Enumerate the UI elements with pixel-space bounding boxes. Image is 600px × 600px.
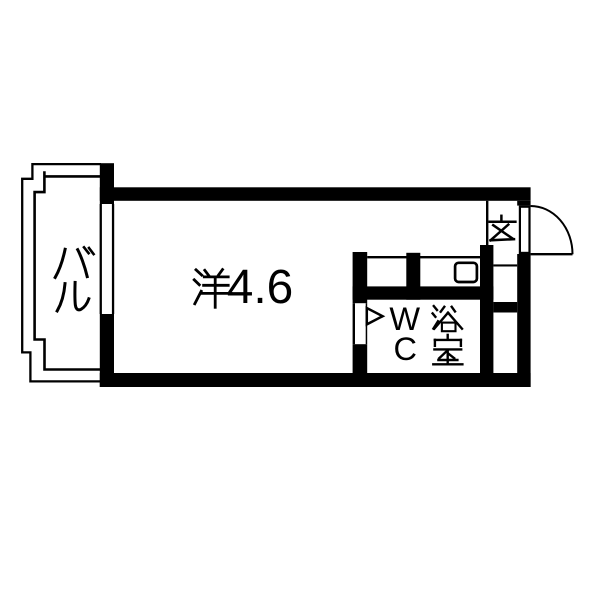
svg-text:4.6: 4.6	[227, 260, 293, 314]
svg-text:C: C	[394, 331, 417, 367]
